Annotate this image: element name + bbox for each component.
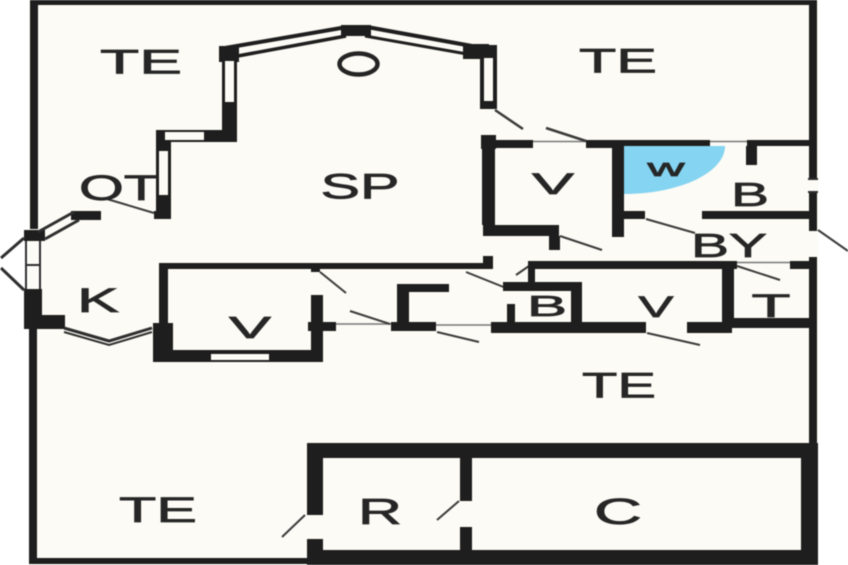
svg-text:w: w [645,155,686,182]
svg-text:T: T [752,288,791,324]
svg-text:OT: OT [79,169,159,208]
svg-text:R: R [358,491,402,532]
svg-text:TE: TE [582,367,656,406]
svg-text:V: V [639,291,674,324]
svg-text:C: C [594,491,642,532]
svg-text:B: B [731,176,769,213]
svg-text:TE: TE [119,491,197,530]
svg-text:B: B [527,291,567,323]
svg-text:BY: BY [691,227,767,264]
svg-text:K: K [77,282,120,320]
svg-text:V: V [532,168,574,201]
svg-text:SP: SP [321,168,400,207]
svg-text:V: V [229,310,272,345]
svg-text:TE: TE [100,44,182,82]
svg-text:TE: TE [579,43,657,81]
